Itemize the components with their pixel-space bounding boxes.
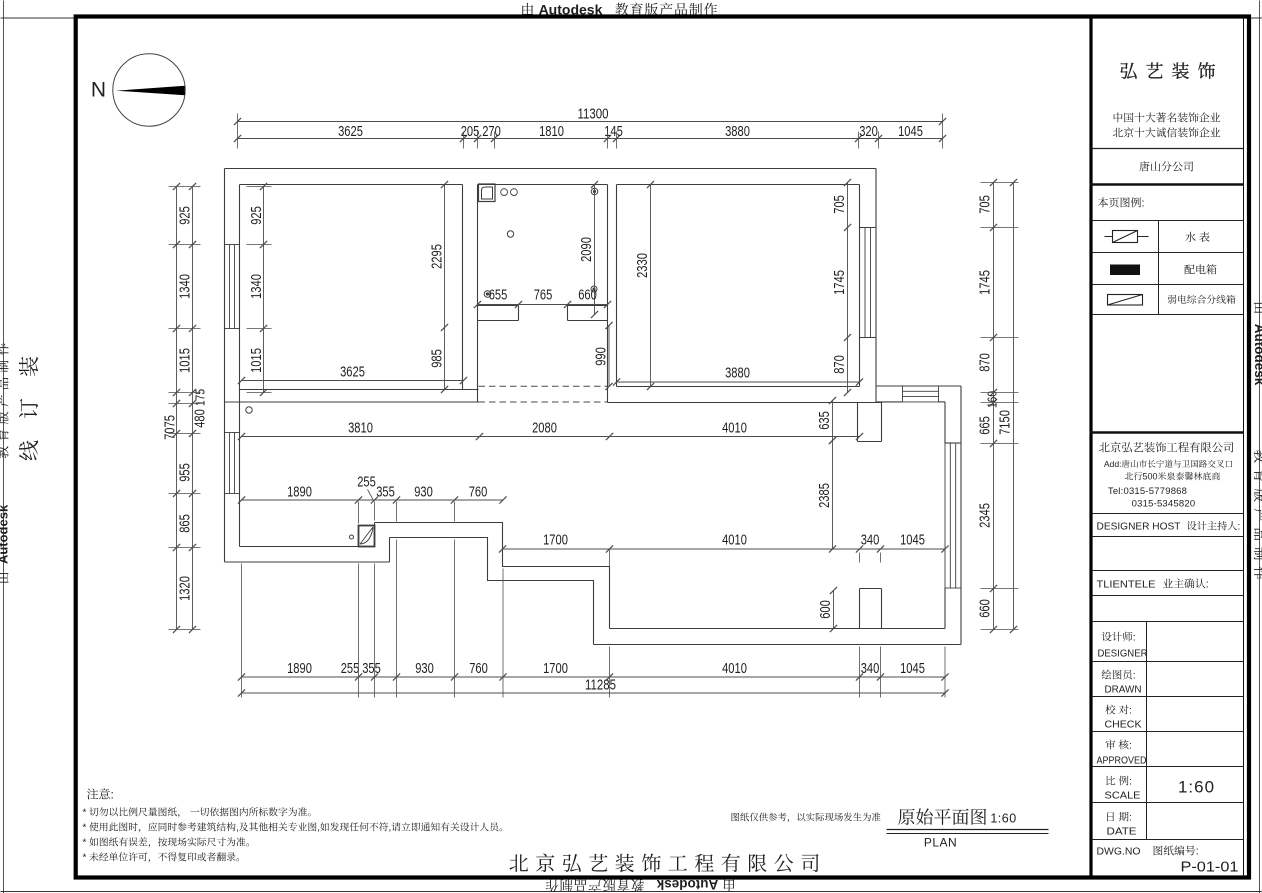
svg-text:SCALE: SCALE: [1105, 790, 1141, 802]
svg-text:3880: 3880: [725, 366, 750, 382]
svg-text::: :: [1133, 632, 1136, 644]
svg-text::: :: [1142, 198, 1145, 210]
svg-text:600: 600: [818, 600, 834, 619]
svg-text::: :: [1129, 705, 1132, 717]
svg-text:Add:: Add:: [1104, 459, 1122, 469]
svg-text:1810: 1810: [539, 124, 564, 140]
svg-text:765: 765: [534, 288, 553, 304]
svg-text:1700: 1700: [543, 661, 568, 677]
svg-text::: :: [1206, 579, 1209, 591]
svg-text:DESIGNER: DESIGNER: [1098, 648, 1148, 660]
svg-text:255: 255: [357, 475, 376, 491]
svg-text:1015: 1015: [249, 348, 265, 373]
svg-text:1745: 1745: [978, 270, 994, 295]
svg-text:985: 985: [430, 349, 446, 368]
svg-text:635: 635: [817, 411, 833, 430]
svg-text:930: 930: [414, 485, 433, 501]
svg-text:0315-5345820: 0315-5345820: [1132, 499, 1196, 510]
svg-text:,: ,: [389, 823, 392, 834]
svg-text:2080: 2080: [532, 421, 557, 437]
svg-text:1745: 1745: [832, 270, 848, 295]
svg-text:4010: 4010: [722, 421, 747, 437]
svg-text:TLIENTELE: TLIENTELE: [1097, 579, 1156, 591]
svg-text:1:60: 1:60: [1178, 778, 1215, 797]
svg-text:11285: 11285: [585, 678, 616, 694]
svg-text:N: N: [91, 79, 106, 102]
svg-text:2385: 2385: [817, 483, 833, 508]
svg-text:1890: 1890: [287, 485, 312, 501]
svg-text:760: 760: [469, 485, 488, 501]
svg-text:DESIGNER HOST: DESIGNER HOST: [1097, 521, 1182, 533]
svg-text:PLAN: PLAN: [924, 836, 957, 850]
svg-text:865: 865: [178, 514, 194, 533]
svg-text:7075: 7075: [163, 415, 179, 440]
svg-text:*: *: [83, 853, 90, 864]
svg-text:1045: 1045: [900, 661, 925, 677]
svg-text:955: 955: [178, 463, 194, 482]
svg-text::: :: [1196, 846, 1199, 858]
svg-text:320: 320: [859, 124, 878, 140]
svg-text:3625: 3625: [338, 124, 363, 140]
svg-text:4010: 4010: [722, 533, 747, 549]
svg-text:930: 930: [415, 661, 434, 677]
svg-text:DATE: DATE: [1107, 826, 1137, 838]
svg-text::: :: [1129, 740, 1132, 752]
svg-text:705: 705: [832, 195, 848, 214]
svg-text::: :: [1133, 670, 1136, 682]
svg-text:2330: 2330: [635, 253, 651, 278]
svg-text:11300: 11300: [578, 107, 609, 123]
svg-text:355: 355: [376, 485, 395, 501]
svg-text:1890: 1890: [287, 661, 312, 677]
svg-text:340: 340: [861, 533, 880, 549]
svg-text:145: 145: [604, 124, 623, 140]
svg-text::: :: [1238, 522, 1241, 533]
svg-text:355: 355: [362, 661, 381, 677]
svg-text:1700: 1700: [543, 533, 568, 549]
svg-text:*: *: [83, 823, 90, 834]
svg-text:665: 665: [978, 416, 994, 435]
svg-text:*: *: [83, 838, 90, 849]
svg-text:480: 480: [193, 409, 209, 428]
svg-text::: :: [1129, 812, 1132, 824]
svg-text:2090: 2090: [579, 237, 595, 262]
svg-text:*: *: [83, 808, 90, 819]
svg-text:APPROVED: APPROVED: [1097, 755, 1147, 767]
svg-text:655: 655: [489, 288, 508, 304]
svg-text:DWG.NO: DWG.NO: [1097, 846, 1141, 858]
svg-text:500: 500: [1143, 472, 1158, 482]
svg-text:660: 660: [578, 288, 597, 304]
svg-text:870: 870: [832, 355, 848, 374]
svg-text:Tel:0315-5779868: Tel:0315-5779868: [1108, 486, 1187, 497]
svg-text:705: 705: [978, 195, 994, 214]
svg-text:1340: 1340: [178, 274, 194, 299]
svg-text:3625: 3625: [340, 365, 365, 381]
svg-text::: :: [111, 788, 114, 802]
svg-text:160: 160: [985, 391, 1000, 408]
svg-text:760: 760: [469, 661, 488, 677]
svg-text:340: 340: [861, 661, 880, 677]
svg-text:Autodesk: Autodesk: [1252, 321, 1262, 390]
svg-text:Autodesk: Autodesk: [0, 501, 11, 567]
svg-text:,: ,: [317, 823, 320, 834]
svg-text:255: 255: [341, 661, 360, 677]
svg-text:7150: 7150: [998, 410, 1014, 435]
svg-text:3810: 3810: [348, 421, 373, 437]
svg-text:2345: 2345: [978, 503, 994, 528]
svg-text:2295: 2295: [430, 244, 446, 269]
svg-text:925: 925: [249, 206, 265, 225]
svg-text:CHECK: CHECK: [1105, 719, 1142, 731]
svg-text:1045: 1045: [900, 533, 925, 549]
svg-text:1320: 1320: [178, 576, 194, 601]
svg-text:870: 870: [978, 353, 994, 372]
svg-text:P-01-01: P-01-01: [1181, 860, 1239, 876]
svg-text:1:60: 1:60: [990, 812, 1016, 826]
svg-text:1045: 1045: [898, 124, 923, 140]
svg-text:1015: 1015: [178, 348, 194, 373]
svg-text:DRAWN: DRAWN: [1105, 684, 1142, 696]
svg-text:1340: 1340: [249, 274, 265, 299]
svg-text:925: 925: [178, 206, 194, 225]
svg-text::: :: [1129, 776, 1132, 788]
svg-text:4010: 4010: [722, 661, 747, 677]
svg-text:,: ,: [236, 823, 239, 834]
svg-text:3880: 3880: [725, 124, 750, 140]
svg-text:990: 990: [594, 347, 610, 366]
svg-text:660: 660: [978, 599, 994, 618]
svg-text:270: 270: [482, 124, 501, 140]
